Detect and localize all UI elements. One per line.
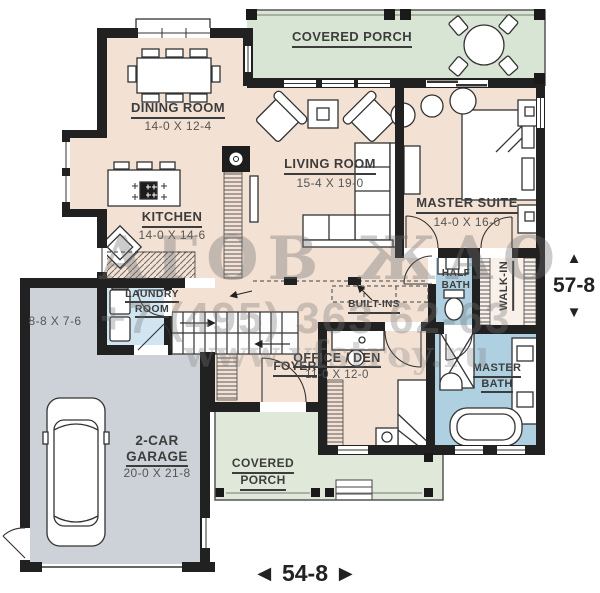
front-steps bbox=[336, 480, 372, 500]
floor-plan: COVERED PORCH DINING ROOM 14-0 X 12-4 LI… bbox=[0, 0, 600, 593]
garage-car bbox=[43, 398, 109, 546]
fireplace bbox=[222, 146, 250, 172]
stairs bbox=[172, 312, 298, 354]
floor-plan-drawing bbox=[0, 0, 600, 593]
laundry-appliances bbox=[110, 284, 130, 341]
